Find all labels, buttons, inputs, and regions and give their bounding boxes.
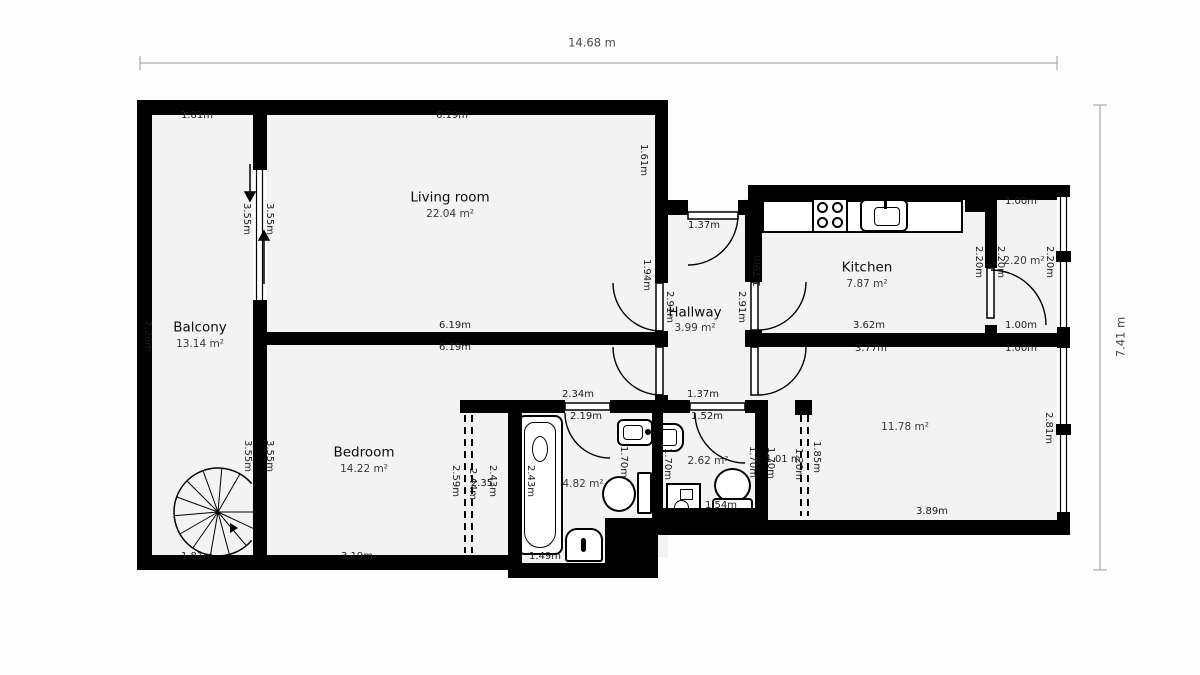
room-area-living-room: 22.04 m² [426,209,474,220]
dimension-label: 1.70m [662,448,672,480]
wall-segment [985,325,997,333]
wall-segment [745,400,768,413]
room-name-hallway: Hallway [668,306,721,320]
dimension-label: 3.77m [855,344,887,354]
room-area-balcony: 13.14 m² [176,339,224,350]
room-area-kitchen: 7.87 m² [846,279,887,290]
dimension-label: 2.59m [450,465,460,497]
floor-living [267,115,668,335]
dimension-label: 3.89m [916,507,948,517]
dimension-label: 2.20m [973,246,983,278]
room-area-room: 11.78 m² [881,422,929,433]
dimension-label: 2.44m [467,468,477,500]
bathroom-sink [617,419,653,446]
wall-segment [610,400,690,413]
overall-width-label: 14.68 m [568,37,616,49]
bathtub-drain [532,436,548,462]
bathroom-radiator [565,528,603,562]
dimension-label: 3.62m [853,321,885,331]
wall-segment [1057,185,1070,535]
dimension-label: 6.19m [436,111,468,121]
stove-burner [832,202,843,213]
dimension-label: 1.70m [765,447,775,479]
room-area-hallway: 3.99 m² [674,323,715,334]
wall-segment [137,100,668,115]
bathroom-toilet-bowl [602,476,636,512]
dimension-label: 1.00m [1005,197,1037,207]
room-area-wc: 2.62 m² [687,456,728,467]
dimension-label: 3.55m [241,203,251,235]
dimension-label: 1.00m [1005,321,1037,331]
dimension-label: 2.91m [736,291,746,323]
dimension-label: 2.20m [1044,246,1054,278]
overall-height-label: 7.41 m [1115,317,1127,357]
bathtub [517,415,563,555]
wall-segment [965,185,997,212]
dimension-label: 1.61m [638,144,648,176]
wall-segment [795,400,812,415]
bathroom-toilet-tank [637,472,652,514]
dimension-label: 1.94m [641,259,651,291]
dimension-label: 1.81m [181,111,213,121]
room-area-storage: 2.20 m² [1003,256,1044,267]
room-name-living-room: Living room [410,191,489,205]
washing-machine-door [680,489,693,500]
dimension-label: 2.34m [562,390,594,400]
bathroom-sink-basin [623,425,643,440]
radiator-valve-icon [581,538,586,552]
dimension-label: 1.49m [529,552,561,562]
overall-width-dimension-line [140,56,1057,70]
floor-room [745,345,1059,522]
dimension-label: 6.19m [439,321,471,331]
overall-height-dimension-line [1093,105,1107,570]
dimension-label: 3.55m [264,203,274,235]
dimension-label: 3.55m [242,440,252,472]
wall-segment [253,100,267,170]
room-name-bedroom: Bedroom [333,446,394,460]
dimension-label: 1.85m [811,441,821,473]
stove [812,197,848,233]
room-area-bathroom: 4.82 m² [562,479,603,490]
wall-segment [508,400,522,578]
dimension-label: 1.79m [753,255,763,287]
kitchen-sink [860,199,908,232]
wall-segment [738,200,762,215]
room-area-bedroom: 14.22 m² [340,464,388,475]
dimension-label: 2.43m [525,465,535,497]
stove-burner [817,202,828,213]
wc-sink-basin [661,429,677,446]
room-name-kitchen: Kitchen [842,261,893,275]
dimension-label: 1.00m [1005,344,1037,354]
stove-burner [817,217,828,228]
dimension-label: 1.52m [691,412,723,422]
dimension-label: 1.37m [687,390,719,400]
wall-segment [655,100,668,283]
wall-segment [640,520,1070,535]
dimension-label: 1.54m [705,501,737,511]
room-name-balcony: Balcony [173,321,227,335]
dimension-label: 1.70m [747,446,757,478]
kitchen-sink-basin [874,207,900,226]
dimension-label: 3.19m [341,552,373,562]
wall-segment [253,300,267,560]
dimension-label: 6.19m [439,343,471,353]
dimension-label: 1.37m [688,221,720,231]
dimension-label: 1.81m [181,552,213,562]
dimension-label: 1.70m [618,446,628,478]
dimension-label: 7.26m [142,320,152,352]
floor-plan: 14.68 m 7.41 m 1.81m6.19m1.61m3.55m3.55m… [0,0,1200,675]
dimension-label: 3.55m [264,440,274,472]
dimension-label: 2.81m [1043,412,1053,444]
stove-burner [832,217,843,228]
bathroom-faucet-icon [645,429,651,435]
dimension-label: 2.19m [570,412,602,422]
